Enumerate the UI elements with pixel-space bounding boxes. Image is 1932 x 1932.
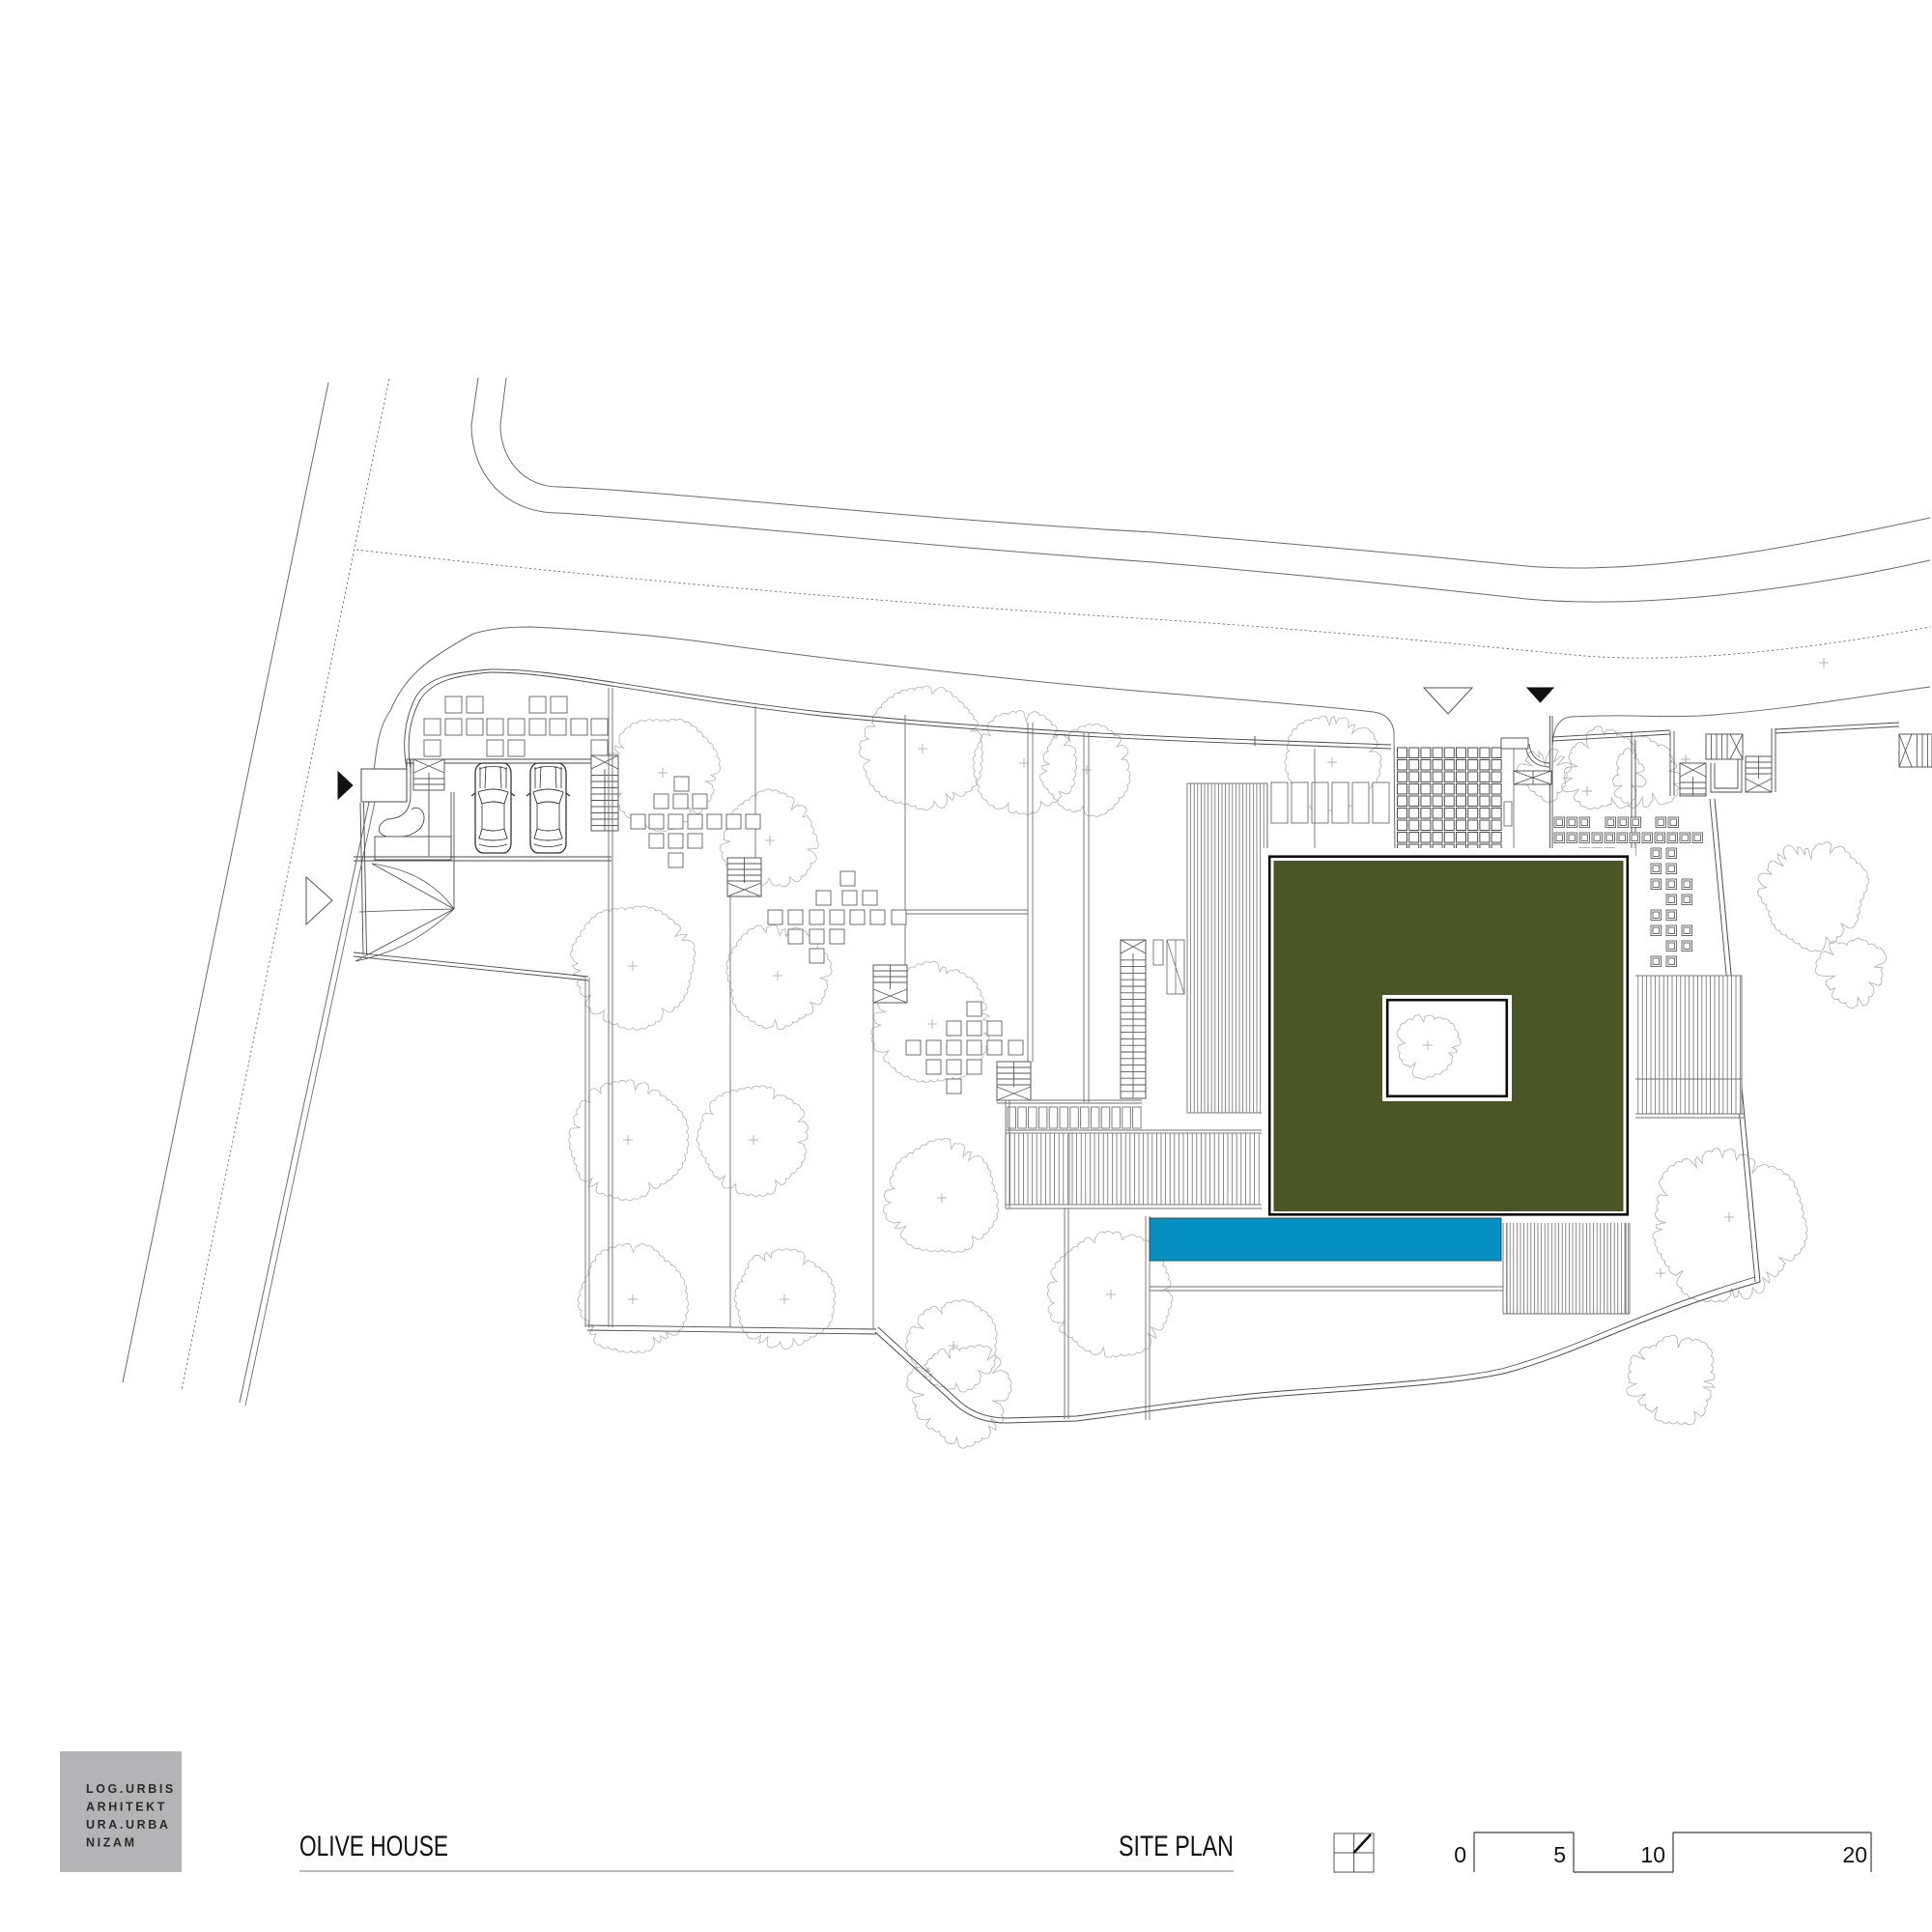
svg-text:ARHITEKT: ARHITEKT [86,1801,167,1814]
svg-text:10: 10 [1640,1842,1665,1867]
svg-text:20: 20 [1842,1842,1867,1867]
svg-text:URA.URBA: URA.URBA [86,1818,170,1832]
svg-text:0: 0 [1454,1842,1466,1867]
svg-text:NIZAM: NIZAM [86,1836,137,1850]
svg-text:OLIVE HOUSE: OLIVE HOUSE [299,1831,448,1862]
svg-text:LOG.URBIS: LOG.URBIS [86,1782,176,1796]
svg-text:5: 5 [1553,1842,1566,1867]
svg-text:SITE PLAN: SITE PLAN [1119,1831,1234,1862]
